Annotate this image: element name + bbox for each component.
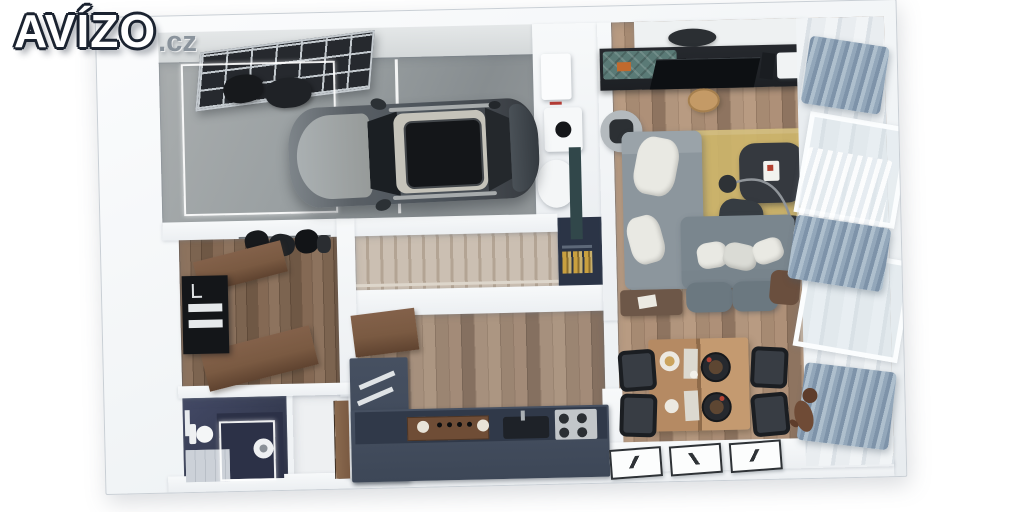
burner-4 — [577, 427, 587, 437]
kitchen-sink — [503, 416, 549, 439]
washing-machine — [544, 107, 583, 152]
wall-art-frame-3 — [729, 439, 783, 473]
pouf-1 — [686, 282, 733, 313]
cabinet-handle-2 — [357, 387, 394, 407]
dog — [788, 386, 819, 435]
floorplan-photo: AVÍZO.cz — [0, 0, 1024, 512]
logo-suffix: .cz — [158, 26, 197, 58]
car-sunroof — [403, 118, 484, 190]
avizo-logo: AVÍZO.cz — [14, 8, 195, 55]
dining-chair-3 — [750, 346, 789, 389]
cabinet-stripe-1 — [188, 303, 222, 312]
food-1 — [709, 360, 723, 374]
washer-drum-window — [555, 121, 571, 137]
stove — [555, 409, 598, 440]
knob-4 — [467, 422, 472, 427]
utility-door — [569, 147, 583, 239]
orange-book — [617, 62, 631, 71]
burner-3 — [559, 428, 569, 438]
knob-2 — [447, 422, 452, 427]
boiler — [541, 53, 572, 100]
dining-chair-4 — [750, 391, 791, 437]
cabinet-stripe-2 — [189, 319, 223, 328]
shoe-cabinet — [182, 275, 230, 354]
knob-1 — [437, 422, 442, 427]
kitchen-counter-horizontal — [351, 405, 611, 483]
faucet — [521, 411, 525, 421]
corridor-door — [334, 401, 350, 479]
garnish-2 — [719, 396, 724, 401]
frame-artwork-2 — [683, 452, 706, 466]
tv — [650, 57, 761, 90]
cabinet-hook — [192, 284, 202, 298]
bench-paper — [637, 294, 657, 309]
wall-art-frame-1 — [609, 446, 663, 480]
frame-artwork-1 — [623, 455, 646, 469]
bench-ottoman — [620, 289, 683, 316]
towel-rail — [185, 410, 191, 436]
placemat-2 — [684, 390, 700, 421]
dining-chair-1 — [617, 349, 657, 393]
wall-art-frame-2 — [669, 443, 723, 477]
food-2 — [710, 400, 724, 414]
food-3 — [665, 356, 675, 366]
sink-drain — [259, 444, 267, 452]
coat-4 — [317, 235, 331, 253]
books-row — [562, 251, 592, 274]
dog-body — [791, 398, 817, 434]
dining-chair-2 — [619, 393, 657, 437]
frame-artwork-3 — [743, 449, 766, 463]
burner-2 — [577, 413, 587, 423]
garnish-1 — [707, 357, 712, 362]
burner-1 — [559, 414, 569, 424]
boiler-pipe — [550, 102, 562, 105]
car-tailgate — [509, 103, 541, 192]
car — [286, 91, 543, 215]
stair-end-shelf — [351, 308, 420, 358]
floor-plan — [95, 0, 908, 495]
knob-3 — [457, 422, 462, 427]
dog-head — [802, 388, 817, 403]
logo-text: AVÍZO — [14, 5, 156, 57]
curtain-top — [801, 35, 890, 114]
